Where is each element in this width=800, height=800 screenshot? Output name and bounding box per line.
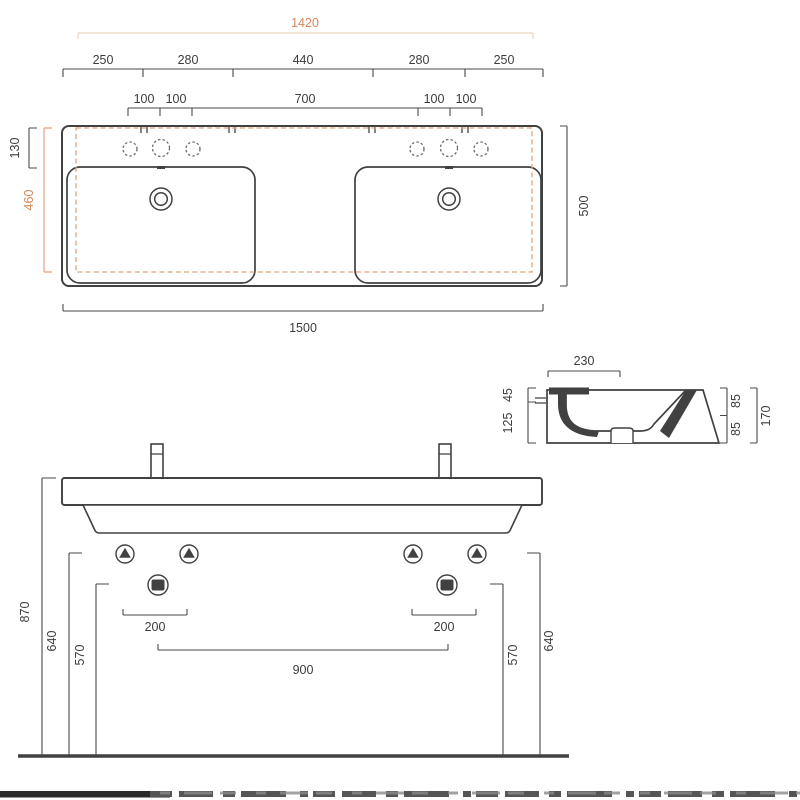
- dim-280-left-label: 280: [178, 53, 199, 67]
- dim-200-left-line: [123, 609, 187, 615]
- tap-stub-left: [151, 444, 163, 478]
- drain-outlet-symbol-right: [437, 575, 457, 595]
- front-view: 200 200 900 870 640 570 570 640: [18, 444, 569, 756]
- fixing-hole-symbol-3: [404, 545, 422, 563]
- tap-stub-right: [439, 444, 451, 478]
- dim-tapholes-line: [128, 108, 482, 116]
- fixing-hole-symbol-2: [180, 545, 198, 563]
- dim-870-label: 870: [18, 602, 32, 623]
- dim-700-label: 700: [295, 92, 316, 106]
- fixing-hole-symbol-4: [468, 545, 486, 563]
- dim-45-label: 45: [501, 388, 515, 402]
- dim-100-c-label: 100: [424, 92, 445, 106]
- section-fixing-marks: [535, 398, 546, 403]
- dim-460-line: [44, 128, 52, 272]
- dim-570-right-line: [490, 584, 503, 755]
- noise-strip-solid: [0, 791, 170, 798]
- dim-900-label: 900: [293, 663, 314, 677]
- dim-230-line: [548, 371, 620, 377]
- dim-570-right-label: 570: [506, 645, 520, 666]
- dim-125-label: 125: [501, 413, 515, 434]
- dim-130-line: [29, 128, 37, 168]
- dim-500-line: [560, 126, 567, 286]
- drain-square-icon: [441, 580, 454, 591]
- dim-130-label: 130: [8, 138, 22, 159]
- section-view: 230 45 125 85 85 170: [501, 354, 773, 443]
- dim-200-left-label: 200: [145, 620, 166, 634]
- washbasin-outline-top: [62, 126, 542, 286]
- dim-870-line: [42, 478, 56, 755]
- dim-170-label: 170: [759, 406, 773, 427]
- drain-square-icon: [152, 580, 165, 591]
- section-drain-boss: [611, 428, 633, 443]
- dim-1500-label: 1500: [289, 321, 317, 335]
- dim-640-left-label: 640: [45, 631, 59, 652]
- dim-250-left-label: 250: [93, 53, 114, 67]
- washbasin-technical-drawing: 1420 250 280 440 280 250 100 100 700 100…: [0, 0, 800, 800]
- dim-100-d-label: 100: [456, 92, 477, 106]
- dim-250-right-label: 250: [494, 53, 515, 67]
- technical-drawing-page: 1420 250 280 440 280 250 100 100 700 100…: [0, 0, 800, 800]
- dim-1420-label: 1420: [291, 16, 319, 30]
- dim-440-label: 440: [293, 53, 314, 67]
- dim-1500-line: [63, 304, 543, 311]
- dim-85-top-label: 85: [729, 394, 743, 408]
- washbasin-front-underside: [83, 505, 522, 533]
- dim-570-left-label: 570: [73, 645, 87, 666]
- fixing-triangle-icon: [119, 548, 131, 558]
- top-view: 1420 250 280 440 280 250 100 100 700 100…: [8, 16, 591, 335]
- dim-230-label: 230: [574, 354, 595, 368]
- fixing-hole-symbol-1: [116, 545, 134, 563]
- fixing-triangle-icon: [183, 548, 195, 558]
- dim-500-label: 500: [577, 196, 591, 217]
- dim-85-85-line: [720, 388, 727, 443]
- dim-85-bottom-label: 85: [729, 422, 743, 436]
- washbasin-front-slab: [62, 478, 542, 505]
- dim-900-line: [158, 644, 448, 650]
- dim-1420-line: [78, 33, 533, 39]
- fixing-triangle-icon: [407, 548, 419, 558]
- dim-45-125-line: [528, 388, 536, 443]
- dim-100-b-label: 100: [166, 92, 187, 106]
- dim-170-line: [750, 388, 757, 443]
- dim-200-right-line: [412, 609, 476, 615]
- bottom-noise-strip: [0, 791, 800, 798]
- dim-280-right-label: 280: [409, 53, 430, 67]
- drain-outlet-symbol-left: [148, 575, 168, 595]
- dim-200-right-label: 200: [434, 620, 455, 634]
- dim-570-left-line: [96, 584, 109, 755]
- dim-640-right-line: [527, 553, 540, 755]
- dim-segments-line: [63, 69, 543, 77]
- dim-460-label: 460: [22, 190, 36, 211]
- dim-100-a-label: 100: [134, 92, 155, 106]
- section-rim-cap: [549, 388, 589, 395]
- dim-640-right-label: 640: [542, 631, 556, 652]
- fixing-triangle-icon: [471, 548, 483, 558]
